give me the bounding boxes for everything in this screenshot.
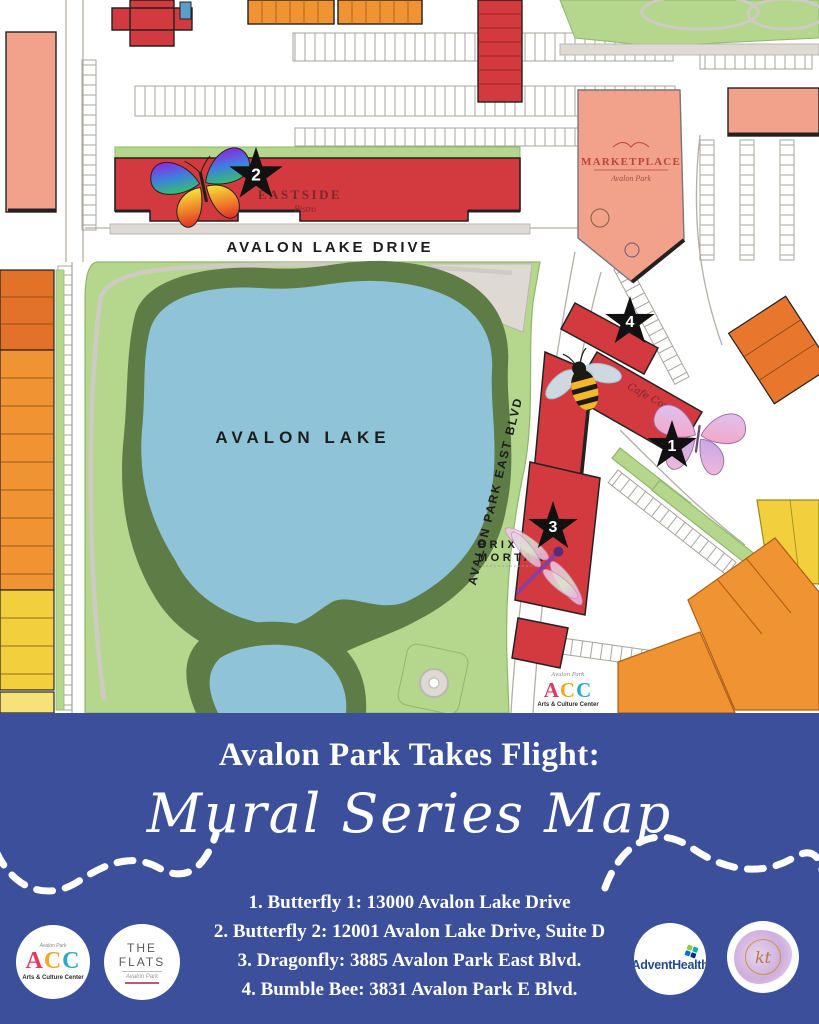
footer-panel: Avalon Park Takes Flight: Mural Series M… bbox=[0, 713, 819, 1024]
kt-gold-ring: kt bbox=[745, 939, 781, 975]
acc-map-sublabel: Arts & Culture Center bbox=[537, 702, 599, 708]
marketplace-label: MARKETPLACE bbox=[581, 156, 681, 168]
svg-text:3: 3 bbox=[549, 519, 558, 536]
adventhealth-logo: AdventHealth bbox=[634, 923, 706, 995]
eastside-sublabel: Bistro bbox=[294, 204, 316, 214]
blue-building-top bbox=[180, 2, 191, 19]
salmon-building-ne bbox=[728, 88, 819, 136]
kt-watercolor-blob: kt bbox=[734, 930, 792, 984]
mural-series-map-poster: MARKETPLACE Avalon Park EASTSIDE Bistro … bbox=[0, 0, 819, 1024]
poster-title: Avalon Park Takes Flight: bbox=[0, 713, 819, 774]
marketplace-sublabel: Avalon Park bbox=[610, 174, 651, 183]
avalon-lake-drive-label: AVALON LAKE DRIVE bbox=[226, 239, 433, 256]
acc-logo-name: Arts & Culture Center bbox=[22, 975, 83, 981]
map-area: MARKETPLACE Avalon Park EASTSIDE Bistro … bbox=[0, 0, 819, 713]
kt-logo-abbr: kt bbox=[755, 948, 771, 967]
orange-rowhouse-1 bbox=[248, 0, 334, 24]
svg-text:2: 2 bbox=[251, 164, 261, 184]
adventhealth-pinwheel-icon bbox=[684, 944, 698, 958]
adventhealth-logo-name: AdventHealth bbox=[634, 958, 706, 972]
flats-logo-underline bbox=[125, 982, 159, 984]
flats-logo-name: THE FLATS bbox=[104, 941, 180, 969]
orange-rowhouse-2 bbox=[338, 0, 422, 24]
svg-text:1: 1 bbox=[668, 438, 677, 455]
flight-path-right bbox=[597, 796, 819, 916]
acc-logo: Avalon Park ACC Arts & Culture Center bbox=[16, 925, 90, 999]
flats-logo-sub: Avalon Park bbox=[126, 974, 158, 980]
the-flats-logo: THE FLATS Avalon Park bbox=[104, 924, 180, 1000]
red-rowhouse-ne bbox=[478, 0, 522, 102]
acc-logo-letters: ACC bbox=[25, 949, 80, 973]
lake-park: AVALON LAKE bbox=[85, 261, 540, 713]
avalon-lake-water bbox=[141, 281, 494, 626]
svg-text:ACC: ACC bbox=[544, 678, 593, 702]
north-park bbox=[560, 0, 819, 55]
svg-text:4: 4 bbox=[626, 314, 635, 331]
south-plaza bbox=[396, 642, 470, 713]
salmon-building-nw bbox=[6, 32, 56, 212]
avalon-lake-label: AVALON LAKE bbox=[215, 428, 390, 447]
flats-logo-rule bbox=[122, 971, 162, 972]
script-title-row: Mural Series Map bbox=[0, 774, 819, 886]
west-rowhouses bbox=[0, 270, 64, 713]
acc-map-logo: Avalon Park ACC Arts & Culture Center bbox=[537, 672, 599, 708]
site-plan-map: MARKETPLACE Avalon Park EASTSIDE Bistro … bbox=[0, 0, 819, 713]
kt-logo: kt bbox=[727, 921, 799, 993]
